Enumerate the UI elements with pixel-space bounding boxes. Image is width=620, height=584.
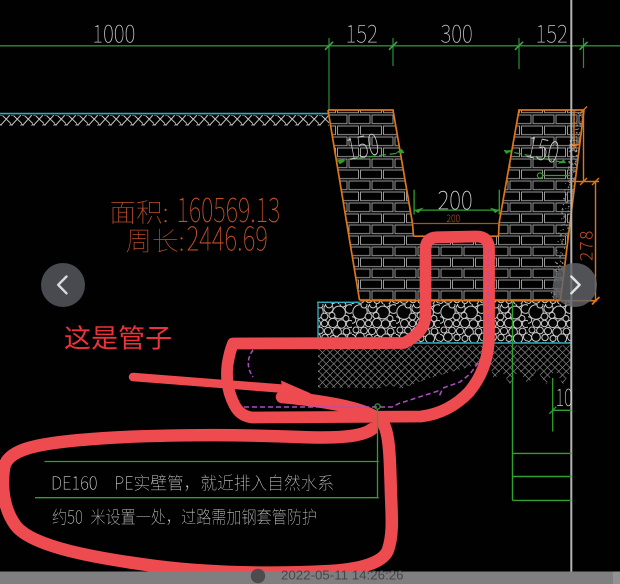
svg-text:2022-05-11 14:26:26: 2022-05-11 14:26:26 <box>281 568 403 583</box>
